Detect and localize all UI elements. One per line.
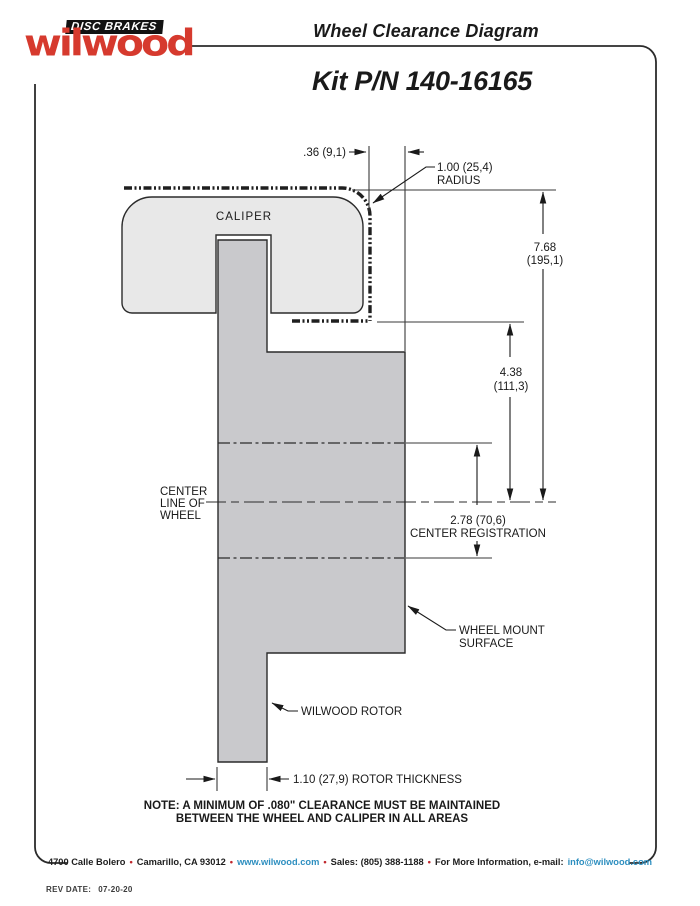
- dim-wheel-gap-label: .36 (9,1): [303, 147, 346, 159]
- wheel-mount-leader: [408, 606, 456, 630]
- revision-date-value: 07-20-20: [98, 885, 132, 894]
- registration-value-label: 2.78 (70,6): [450, 515, 506, 527]
- radius-value-label: 1.00 (25,4): [437, 162, 493, 174]
- page-title: Wheel Clearance Diagram: [196, 21, 656, 42]
- wilwood-logo: DISC BRAKES wilwood: [24, 14, 204, 72]
- radius-word-label: RADIUS: [437, 175, 481, 187]
- footer-bullet: •: [230, 857, 233, 867]
- revision-date: REV DATE: 07-20-20: [46, 885, 133, 894]
- footer-bullet: •: [129, 857, 132, 867]
- footer-bullet: •: [428, 857, 431, 867]
- registration-text-label: CENTER REGISTRATION: [410, 528, 546, 540]
- dim-768-value: 7.68: [534, 242, 556, 254]
- footer-bullet: •: [323, 857, 326, 867]
- centerline-label-3: WHEEL: [160, 510, 202, 522]
- rotor-thickness-label: 1.10 (27,9) ROTOR THICKNESS: [293, 774, 462, 786]
- note-line-1: NOTE: A MINIMUM OF .080" CLEARANCE MUST …: [144, 800, 500, 812]
- footer-contact-line: 4700 Calle Bolero • Camarillo, CA 93012 …: [36, 857, 664, 867]
- dim-438-metric: (111,3): [494, 381, 529, 393]
- footer-more-info: For More Information, e-mail:: [435, 857, 564, 867]
- footer-website-link[interactable]: www.wilwood.com: [237, 857, 319, 867]
- note-line-2: BETWEEN THE WHEEL AND CALIPER IN ALL ARE…: [176, 813, 469, 825]
- wheel-mount-label-2: SURFACE: [459, 638, 514, 650]
- rotor-leader: [272, 703, 298, 711]
- kit-part-number: Kit P/N 140-16165: [192, 66, 652, 97]
- revision-date-label: REV DATE:: [46, 885, 91, 894]
- caliper-label: CALIPER: [216, 211, 272, 223]
- footer-sales-phone: Sales: (805) 388-1188: [331, 857, 424, 867]
- rotor-label: WILWOOD ROTOR: [301, 706, 402, 718]
- wheel-mount-label-1: WHEEL MOUNT: [459, 625, 545, 637]
- footer-email-link[interactable]: info@wilwood.com: [568, 857, 652, 867]
- footer-address: 4700 Calle Bolero: [48, 857, 126, 867]
- frame-border-left: [35, 84, 67, 863]
- centerline-label-2: LINE OF: [160, 498, 205, 510]
- radius-leader: [373, 167, 435, 203]
- centerline-label-1: CENTER: [160, 486, 207, 498]
- wilwood-wordmark: wilwood: [24, 23, 193, 64]
- footer-city: Camarillo, CA 93012: [137, 857, 226, 867]
- rotor-hat-shape: [218, 240, 405, 762]
- dim-438-value: 4.38: [500, 367, 522, 379]
- wheel-clearance-sheet: CALIPER .36 (9,1) 1.00 (25,4) RADIUS 7.6…: [0, 0, 700, 906]
- dim-768-metric: (195,1): [527, 255, 564, 267]
- clearance-diagram: CALIPER .36 (9,1) 1.00 (25,4) RADIUS 7.6…: [0, 0, 700, 906]
